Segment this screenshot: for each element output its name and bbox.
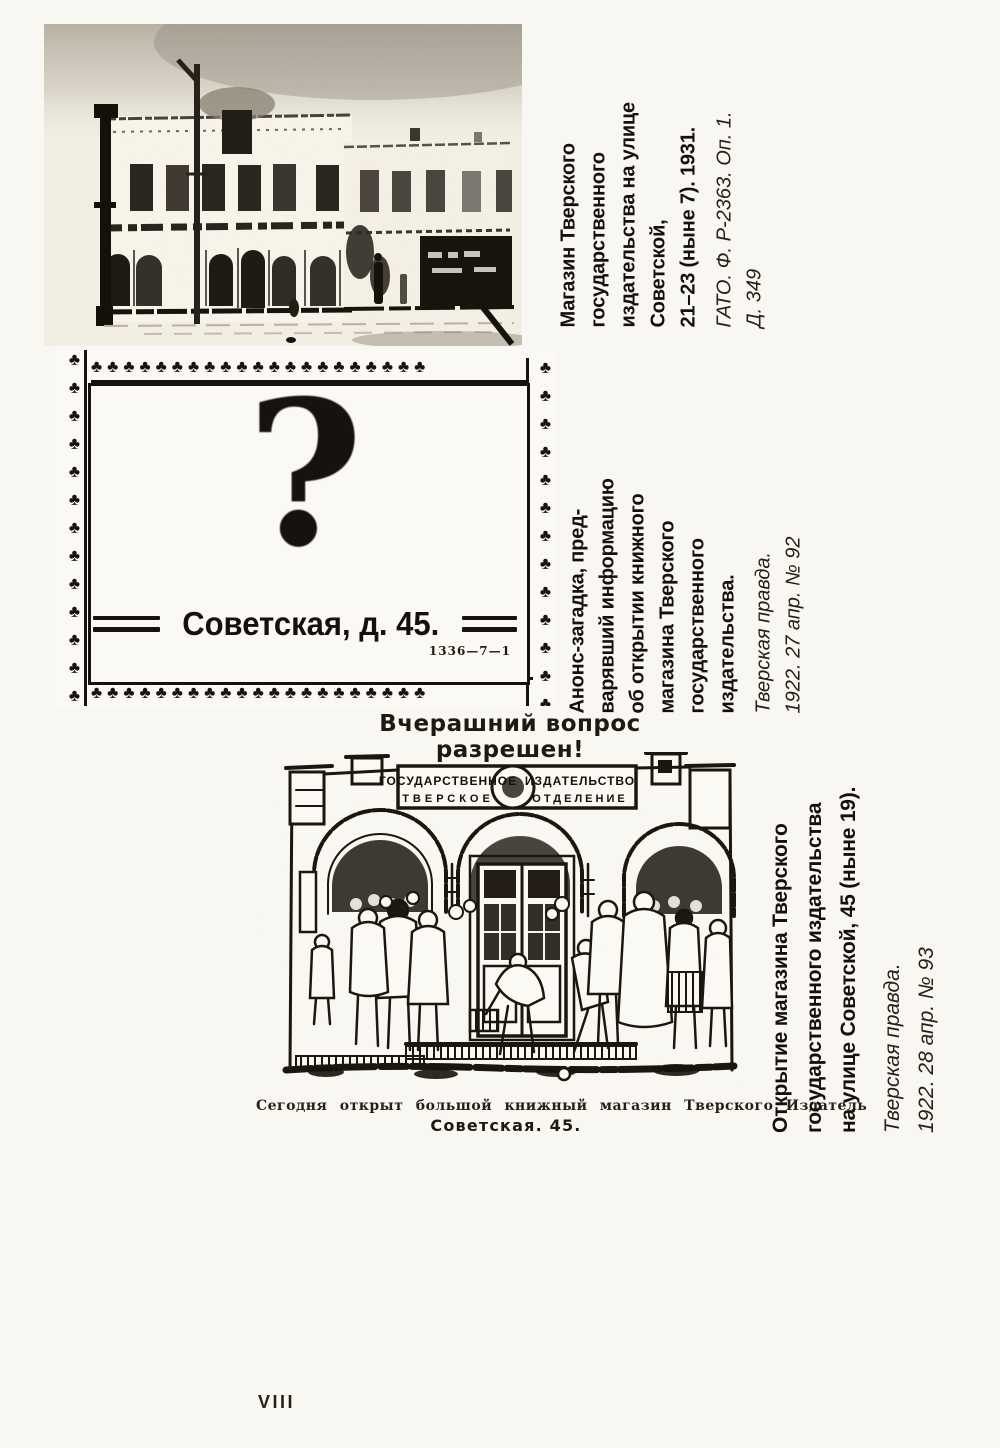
cartoon-subcaption-line2: Советская. 45. [256,1116,756,1135]
ornament-border-left: ♣♣♣♣♣♣♣♣♣♣♣♣♣ [58,350,87,706]
caption-line: на улице Советской, 45 (ныне 19). [832,733,866,1133]
cartoon-subcaption-line1: Сегодня открыт большой книжный магазин Т… [256,1098,756,1114]
ad-address-row: Советская, д. 45. [93,602,517,646]
question-mark: ? [205,382,405,567]
caption-line: государственного [683,396,713,714]
caption-line: варявший информацию [593,396,623,714]
caption-source-line: 1922. 27 апр. № 92 [779,396,809,714]
ad-print-code: 1336—7—1 [427,644,511,658]
building-photo-illustration [44,24,522,346]
double-rule-right [462,616,517,632]
page-number: VIII [258,1392,295,1413]
caption-line: 21–23 (ныне 7). 1931. [674,43,704,328]
caption-source-line: Д. 349 [740,43,770,328]
figure2-advertisement: ♣♣♣♣♣♣♣♣♣♣♣♣♣♣♣♣♣♣♣♣♣ ♣♣♣♣♣♣♣♣♣♣♣♣♣♣♣♣♣♣… [55,350,555,708]
caption-source-line: 1922. 28 апр. № 93 [910,733,944,1133]
figure3-caption: Открытие магазина Тверского государствен… [764,733,954,1133]
figure2-caption: Анонс-загадка, пред- варявший информацию… [563,396,808,714]
caption-line: Советской, [644,43,674,328]
figure1-photo [44,24,522,346]
caption-line: издательства. [713,396,743,714]
figure3-cartoon: ГОСУДАРСТВЕННОЕ ИЗДАТЕЛЬСТВО ТВЕРСКОЕ ОТ… [256,752,754,1084]
book-page: Магазин Тверского государственного издат… [0,0,1000,1448]
figure1-caption: Магазин Тверского государственного издат… [554,43,772,328]
caption-line: издательства на улице [614,43,644,328]
ornament-border-right: ♣♣♣♣♣♣♣♣♣♣♣♣♣ [526,358,555,706]
ad-address: Советская, д. 45. [182,605,439,643]
caption-line: об открытии книжного [623,396,653,714]
caption-line: Магазин Тверского [554,43,584,328]
caption-source-line: ГАТО. Ф. Р-2363. Оп. 1. [710,43,740,328]
caption-line: магазина Тверского [653,396,683,714]
caption-line: Анонс-загадка, пред- [563,396,593,714]
double-rule-left [93,616,160,632]
caption-line: государственного [584,43,614,328]
caption-line: государственного издательства [798,733,832,1133]
store-opening-illustration: ГОСУДАРСТВЕННОЕ ИЗДАТЕЛЬСТВО ТВЕРСКОЕ ОТ… [256,752,754,1084]
caption-source-line: Тверская правда. [876,733,910,1133]
caption-line: Открытие магазина Тверского [764,733,798,1133]
caption-source-line: Тверская правда. [749,396,779,714]
